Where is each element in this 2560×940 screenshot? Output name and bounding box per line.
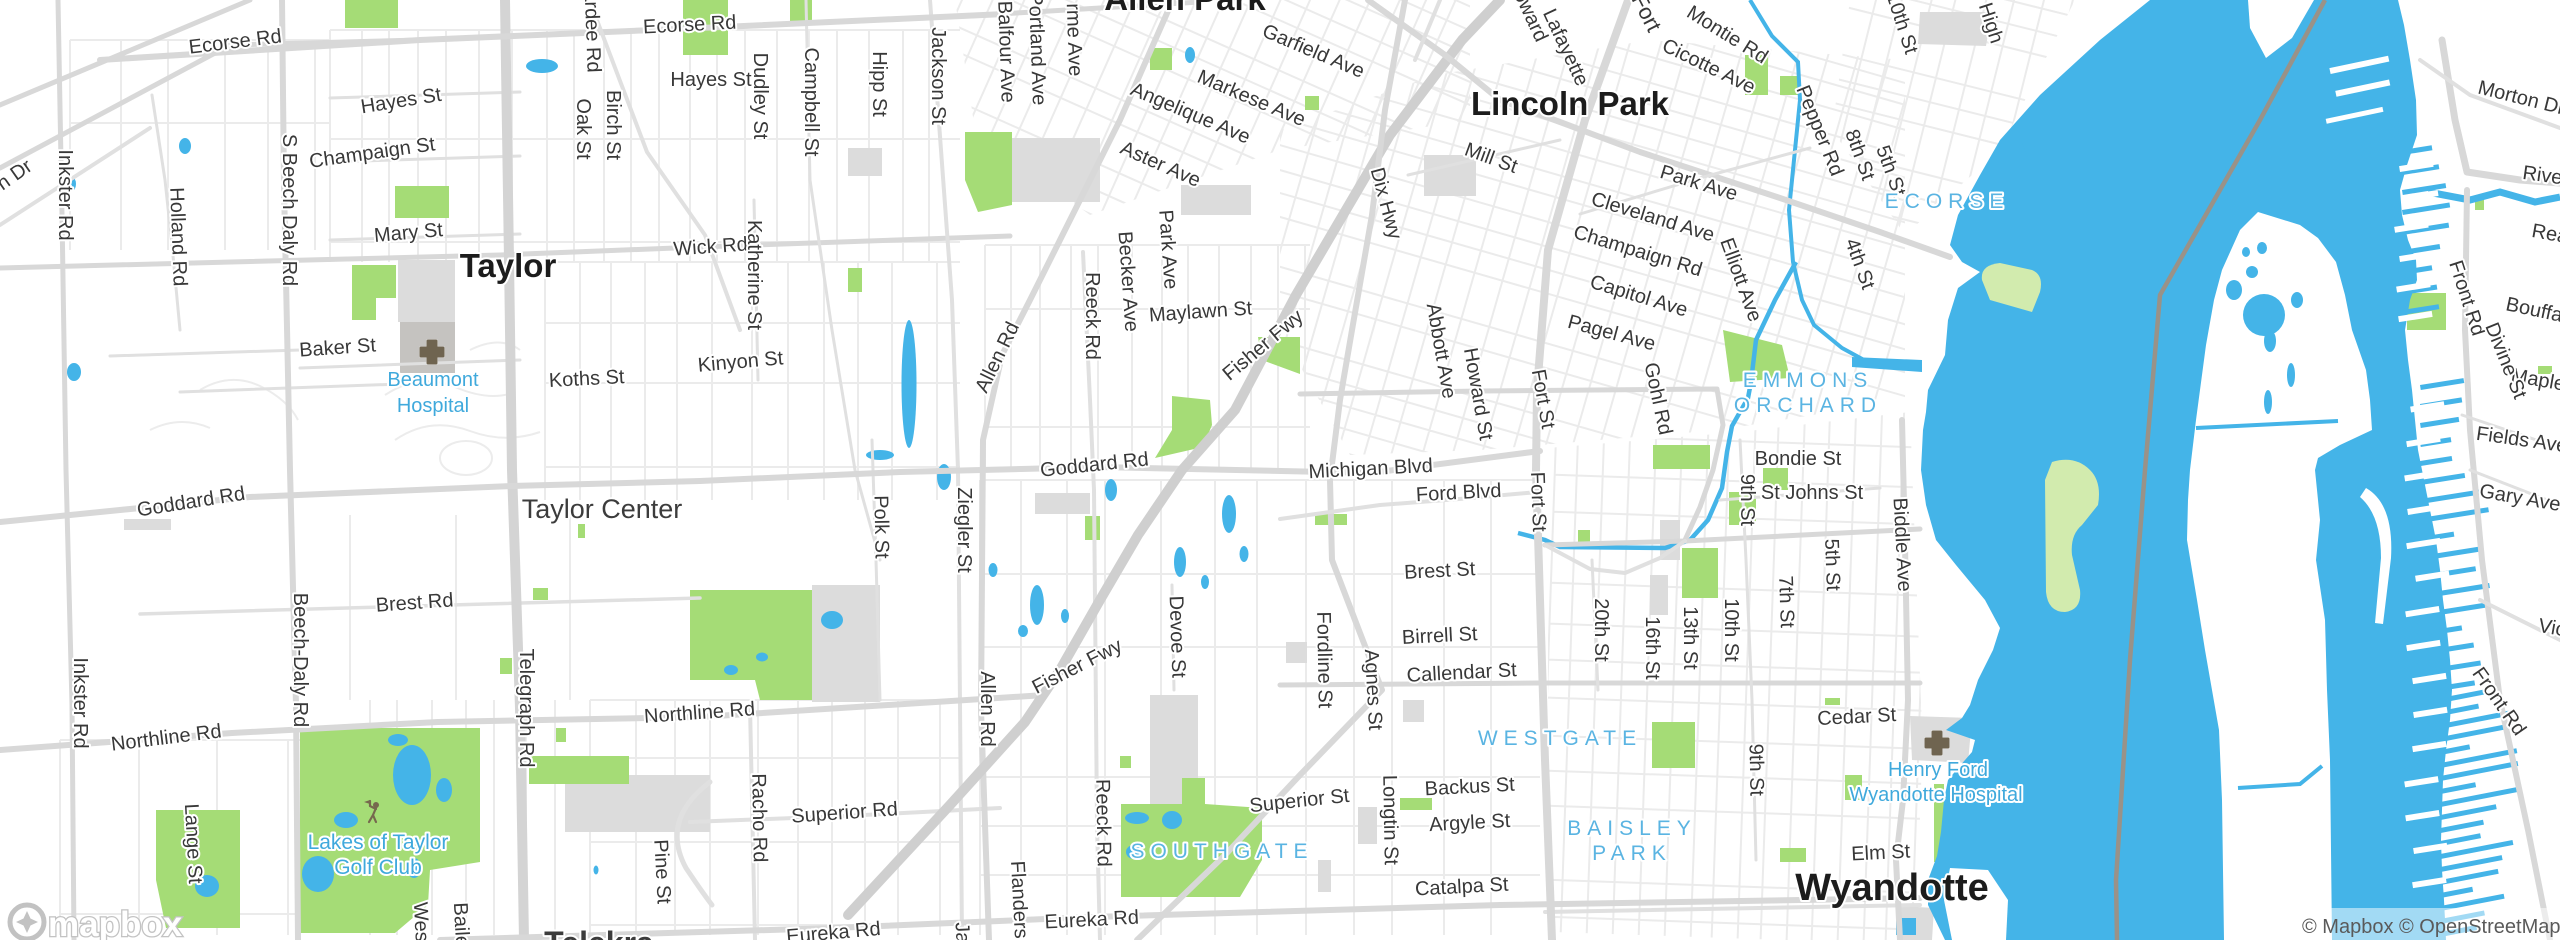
svg-text:© Mapbox © OpenStreetMap: © Mapbox © OpenStreetMap [2302,916,2560,938]
svg-text:16th St: 16th St [1641,616,1663,680]
svg-text:Campbell St: Campbell St [800,48,822,157]
svg-text:rme Ave: rme Ave [1062,3,1087,77]
svg-text:PARK: PARK [1592,842,1672,865]
svg-text:Hospital: Hospital [397,395,469,417]
svg-text:Pardee Rd: Pardee Rd [579,0,604,73]
svg-text:mapbox: mapbox [48,905,183,940]
svg-text:Holland Rd: Holland Rd [165,187,190,287]
svg-text:Inkster Rd: Inkster Rd [69,657,91,748]
svg-text:Hipp St: Hipp St [868,51,890,117]
svg-text:Ziegler St: Ziegler St [953,487,975,573]
svg-text:Beech-Daly Rd: Beech-Daly Rd [289,593,311,728]
svg-text:West: West [409,902,433,940]
svg-text:Portland Ave: Portland Ave [1024,0,1050,106]
svg-text:Lange St: Lange St [180,803,206,885]
svg-text:Flanders: Flanders [1006,860,1032,939]
svg-text:Golf Club: Golf Club [334,856,422,879]
svg-text:Jackson St: Jackson St [927,27,949,125]
svg-text:Allen Rd: Allen Rd [976,671,998,747]
svg-text:Beaumont: Beaumont [387,369,479,391]
svg-text:10th St: 10th St [1720,598,1742,662]
svg-text:BAISLEY: BAISLEY [1567,817,1697,840]
svg-text:Taylor Center: Taylor Center [522,494,683,524]
svg-text:Baile: Baile [449,902,473,940]
svg-text:Racho Rd: Racho Rd [747,773,771,862]
svg-text:Katherine St: Katherine St [743,220,765,331]
svg-text:Ja: Ja [950,922,973,940]
svg-text:Fort St: Fort St [1526,471,1550,532]
svg-text:Balfour Ave: Balfour Ave [993,0,1019,103]
svg-text:Telegraph Rd: Telegraph Rd [515,649,537,768]
svg-text:Cedar St: Cedar St [1817,704,1897,730]
svg-text:ECORSE: ECORSE [1885,190,2010,213]
svg-text:Pine St: Pine St [649,839,674,905]
svg-text:Wyandotte Hospital: Wyandotte Hospital [1849,784,2022,806]
svg-text:Polk St: Polk St [869,495,892,559]
svg-text:Reeck Rd: Reeck Rd [1081,272,1103,360]
svg-text:Agnes St: Agnes St [1360,649,1386,732]
svg-text:Devoe St: Devoe St [1165,595,1190,678]
svg-text:Henry Ford: Henry Ford [1888,759,1988,781]
svg-text:Birch St: Birch St [602,90,624,160]
svg-text:Lincoln Park: Lincoln Park [1471,85,1670,122]
svg-text:Taylor: Taylor [460,247,557,284]
svg-text:Fordline St: Fordline St [1312,611,1336,709]
svg-text:ORCHARD: ORCHARD [1734,394,1882,417]
svg-text:Lakes of Taylor: Lakes of Taylor [308,831,449,854]
svg-text:EMMONS: EMMONS [1743,369,1874,392]
svg-text:Wyandotte: Wyandotte [1795,867,1989,909]
svg-text:Birrell St: Birrell St [1401,623,1478,649]
svg-text:7th St: 7th St [1774,575,1798,628]
svg-text:Bondie St: Bondie St [1755,448,1842,470]
svg-text:9th St: 9th St [1736,474,1758,527]
svg-text:Ford Blvd: Ford Blvd [1415,480,1502,506]
svg-text:Oak St: Oak St [572,98,594,160]
svg-text:St Johns St: St Johns St [1761,482,1864,504]
svg-text:Argyle St: Argyle St [1429,810,1512,836]
svg-text:Reeck Rd: Reeck Rd [1091,779,1115,867]
svg-text:Koths St: Koths St [548,366,625,392]
svg-text:Hayes St: Hayes St [670,69,752,91]
svg-text:Allen Park: Allen Park [1104,0,1266,17]
svg-text:Dudley St: Dudley St [749,53,771,140]
svg-text:SOUTHGATE: SOUTHGATE [1130,840,1313,863]
svg-text:20th St: 20th St [1590,598,1612,662]
svg-text:Telekra: Telekra [544,925,654,940]
svg-text:Brest St: Brest St [1404,558,1477,584]
svg-text:Elm St: Elm St [1851,840,1911,865]
svg-text:13th St: 13th St [1679,606,1701,670]
svg-text:Inkster Rd: Inkster Rd [54,149,76,240]
svg-text:Longtin St: Longtin St [1378,775,1402,866]
svg-text:5th St: 5th St [1820,538,1844,591]
svg-text:WESTGATE: WESTGATE [1478,727,1642,750]
svg-text:9th St: 9th St [1745,744,1768,797]
svg-text:S Beech Daly Rd: S Beech Daly Rd [278,134,300,286]
